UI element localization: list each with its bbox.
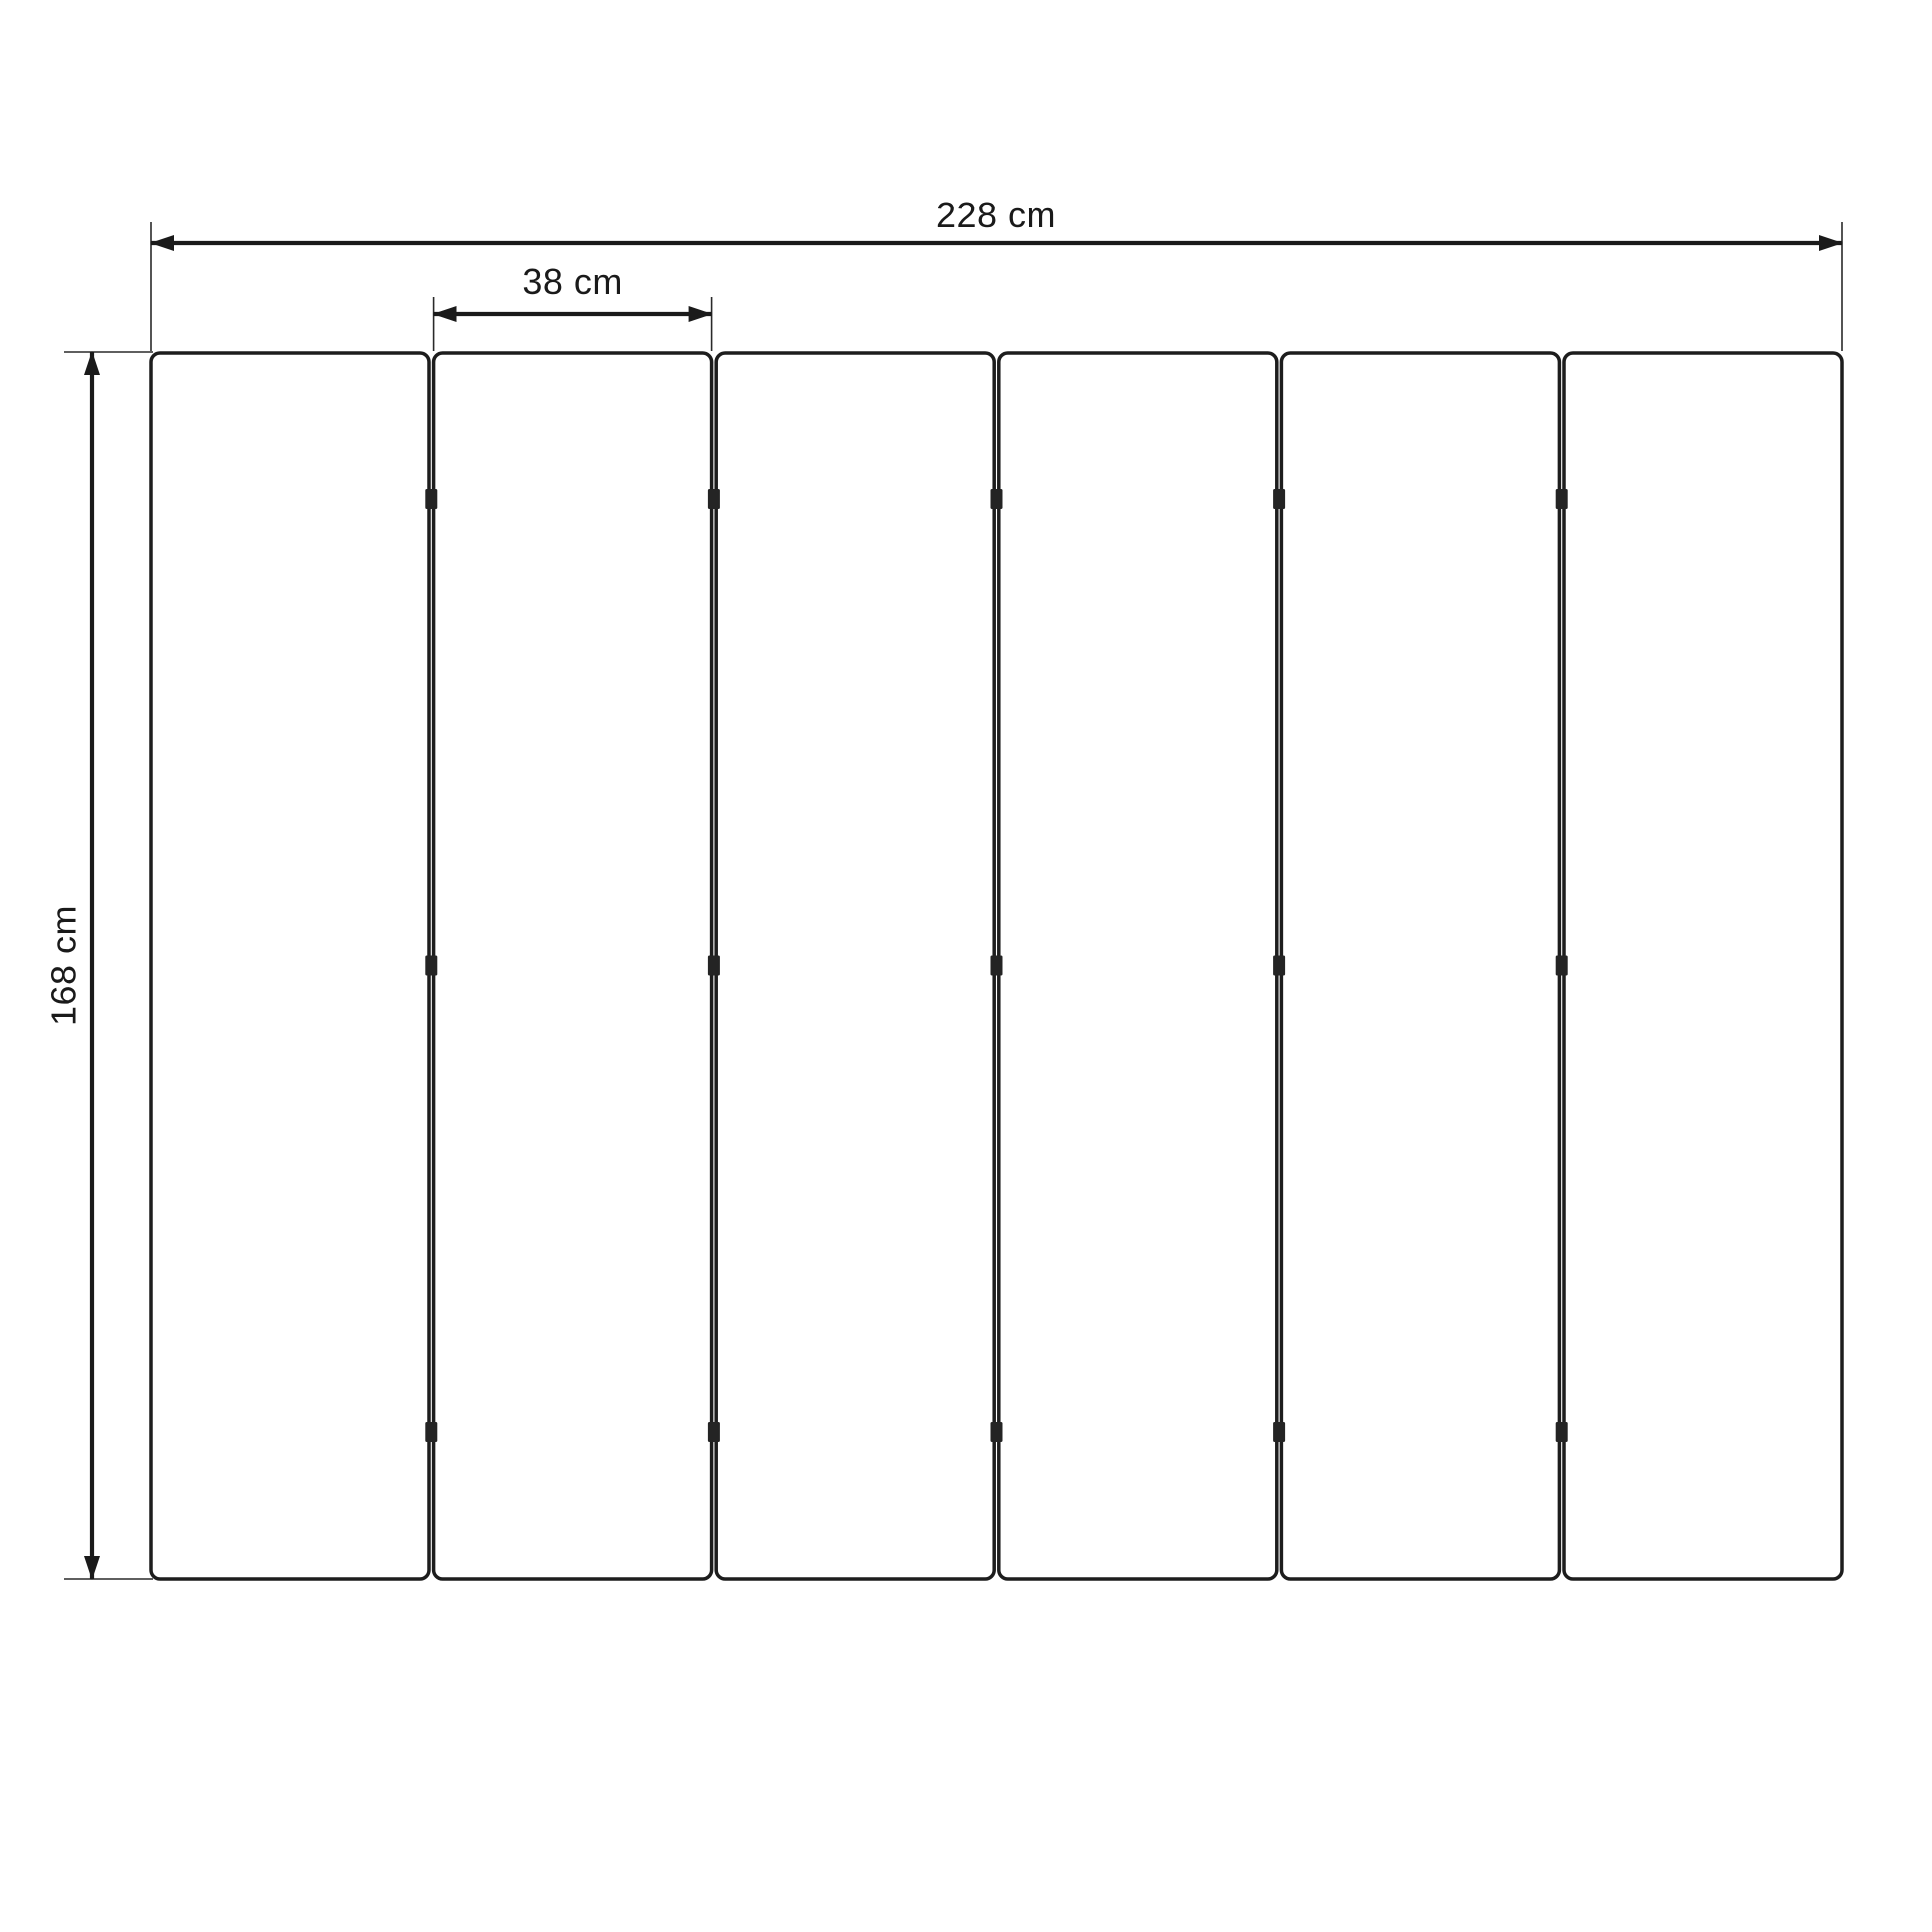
dimension-total-width: 228 cm <box>151 195 1842 351</box>
hinge-connector <box>708 956 720 976</box>
hinge-connector <box>1273 1422 1285 1442</box>
diagram-svg: 228 cm 38 cm 168 cm <box>0 0 1932 1932</box>
dimension-height: 168 cm <box>44 352 154 1579</box>
hinge-connector <box>1273 489 1285 509</box>
panel-4 <box>999 353 1277 1579</box>
hinge-connector <box>708 1422 720 1442</box>
panel-width-label: 38 cm <box>522 261 622 302</box>
panel-6 <box>1564 353 1842 1579</box>
hinge-connector <box>425 1422 437 1442</box>
hinge-connector <box>708 489 720 509</box>
hinge-connector <box>991 1422 1003 1442</box>
total-width-label: 228 cm <box>936 195 1056 235</box>
hinge-connector <box>425 956 437 976</box>
panel-3 <box>716 353 994 1579</box>
panel-1 <box>151 353 429 1579</box>
hinge-connector <box>1556 1422 1568 1442</box>
hinge-connector <box>1556 489 1568 509</box>
hinge-connector <box>1556 956 1568 976</box>
height-label: 168 cm <box>44 905 84 1026</box>
hinge-connector <box>991 956 1003 976</box>
panel-5 <box>1281 353 1559 1579</box>
hinge-connector <box>1273 956 1285 976</box>
dimension-diagram: 228 cm 38 cm 168 cm <box>0 0 1932 1932</box>
dimension-panel-width: 38 cm <box>434 261 712 351</box>
hinge-connector <box>991 489 1003 509</box>
panel-2 <box>434 353 712 1579</box>
hinge-connector <box>425 489 437 509</box>
